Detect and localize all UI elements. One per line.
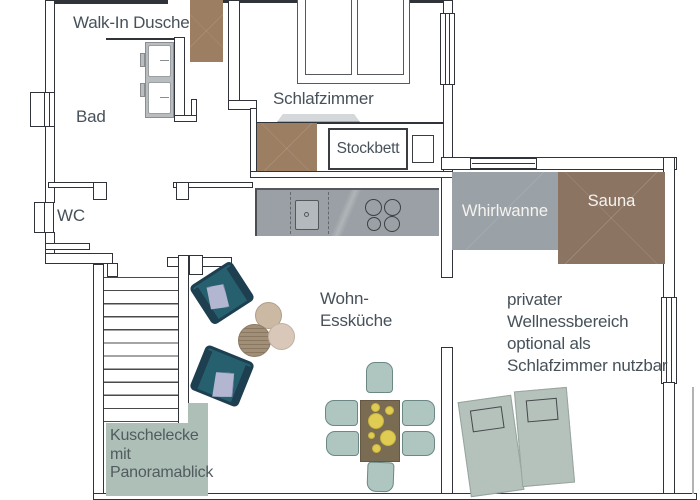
stairs-steps <box>104 265 178 423</box>
armchair-2-cushion <box>210 371 235 399</box>
kitchen-counter <box>255 188 439 236</box>
washbasin-left-tab2 <box>140 83 145 97</box>
dining-table <box>360 400 400 462</box>
wall-hall-right <box>250 108 257 178</box>
terrace-edge-line <box>692 387 694 494</box>
wall-wc-top-stub <box>93 182 107 200</box>
wellnessbereich-line-1: privater <box>507 289 667 311</box>
kuschelecke-notch <box>188 403 208 425</box>
dining-chair-top <box>366 362 393 393</box>
floorplan: Stockbett Whirlwanne Sauna <box>0 0 700 500</box>
window-bad-pane <box>44 93 45 126</box>
lounger-1-pillow <box>470 406 505 432</box>
mattress-left <box>305 0 352 75</box>
niche-small-box <box>412 135 434 163</box>
washbasin-1-drain <box>160 60 169 61</box>
wellnessbereich-line-2: Wellnessbereich <box>507 311 667 333</box>
kitchen-divider-1 <box>290 192 291 234</box>
schlafzimmer-label: Schlafzimmer <box>273 88 374 109</box>
lounger-2-pillow <box>526 398 559 423</box>
plate-3 <box>368 413 384 429</box>
window-wellness-right-pane2 <box>671 298 672 383</box>
mattress-right <box>357 0 404 75</box>
wall-stairs-stub <box>189 255 203 275</box>
wall-left-outer-a <box>45 0 55 93</box>
window-bedroom <box>440 13 455 85</box>
kitchen-faucet <box>304 212 309 217</box>
wall-wellness-right-b <box>663 382 675 497</box>
window-wellness-top-pane <box>472 163 535 164</box>
dining-chair-right-1 <box>402 400 435 426</box>
wc-label: WC <box>57 205 85 226</box>
wardrobe-bad <box>190 0 223 62</box>
wall-hallbottom-left <box>45 253 113 264</box>
window-bad <box>30 92 55 127</box>
kuschelecke-line-3: Panoramablick <box>110 464 213 483</box>
wall-left-outer-b <box>45 126 55 203</box>
dining-chair-bottom <box>366 462 394 493</box>
sauna-area: Sauna <box>558 172 665 264</box>
wall-bad-right-cap <box>174 115 197 122</box>
whirlpool-area: Whirlwanne <box>452 172 558 250</box>
kitchen-divider-2 <box>328 192 329 234</box>
armchair-2-arm-right <box>231 365 252 404</box>
washbasin-2-drain <box>160 97 169 98</box>
wohn-esskueche-line-2: Essküche <box>320 310 392 332</box>
stairs-rail-left <box>93 264 104 496</box>
wohn-esskueche-line-1: Wohn- <box>320 288 392 310</box>
wall-living-right-b <box>441 347 453 497</box>
dining-chair-right-2 <box>402 431 435 456</box>
window-bedroom-pane <box>445 14 446 84</box>
kuschelecke-line-1: Kuschelecke <box>110 427 213 446</box>
wellnessbereich-line-4: Schlafzimmer nutzbar <box>507 355 667 377</box>
armchair-1-arm-right <box>226 265 252 300</box>
armchair-2-arm-left <box>192 349 213 388</box>
coffee-table-3 <box>268 323 295 350</box>
washbasin-left-tab <box>140 53 145 67</box>
wall-niche-bottom <box>250 171 453 178</box>
wall-hall-top-stub <box>176 182 189 200</box>
sauna-label: Sauna <box>588 192 636 211</box>
window-wc-pane <box>44 203 45 232</box>
kuschelecke-line-2: mit <box>110 446 213 465</box>
shower-partition <box>106 38 177 40</box>
wellnessbereich-label: privater Wellnessbereich optional als Sc… <box>507 289 667 377</box>
whirlwanne-label: Whirlwanne <box>462 202 548 221</box>
shelf-tray <box>277 114 360 122</box>
window-bedroom-pane2 <box>449 14 450 84</box>
wellnessbereich-line-3: optional als <box>507 333 667 355</box>
stove-burner-3 <box>367 217 381 231</box>
dining-chair-left-1 <box>325 400 358 426</box>
stockbett-label: Stockbett <box>337 140 400 158</box>
bad-label: Bad <box>76 106 106 127</box>
wardrobe-niche <box>257 123 317 174</box>
wall-bad-right <box>174 37 185 122</box>
stockbett-bed: Stockbett <box>328 128 408 170</box>
lounger-2 <box>514 387 575 487</box>
walk-in-dusche-label: Walk-In Dusche <box>73 12 190 33</box>
wall-top-left <box>45 0 168 4</box>
wohn-esskueche-label: Wohn- Essküche <box>320 288 392 332</box>
wall-wc-top <box>48 182 94 188</box>
stove-burner-4 <box>384 216 400 232</box>
lounger-1 <box>458 395 525 498</box>
stove-burner-2 <box>384 199 401 216</box>
window-bad-pane2 <box>49 93 50 126</box>
wall-bedroom-left <box>228 0 240 101</box>
plate-6 <box>372 444 381 453</box>
plate-2 <box>385 406 394 415</box>
coffee-table-2 <box>238 324 271 357</box>
dining-chair-left-2 <box>326 431 359 456</box>
kuschelecke-label: Kuschelecke mit Panoramablick <box>110 427 213 483</box>
plate-1 <box>371 403 380 412</box>
wall-bad-right-stub <box>191 99 197 116</box>
wall-wc-bottom <box>45 243 90 250</box>
stove-burner-1 <box>365 199 382 216</box>
plate-4 <box>368 432 375 439</box>
plate-5 <box>380 430 396 446</box>
